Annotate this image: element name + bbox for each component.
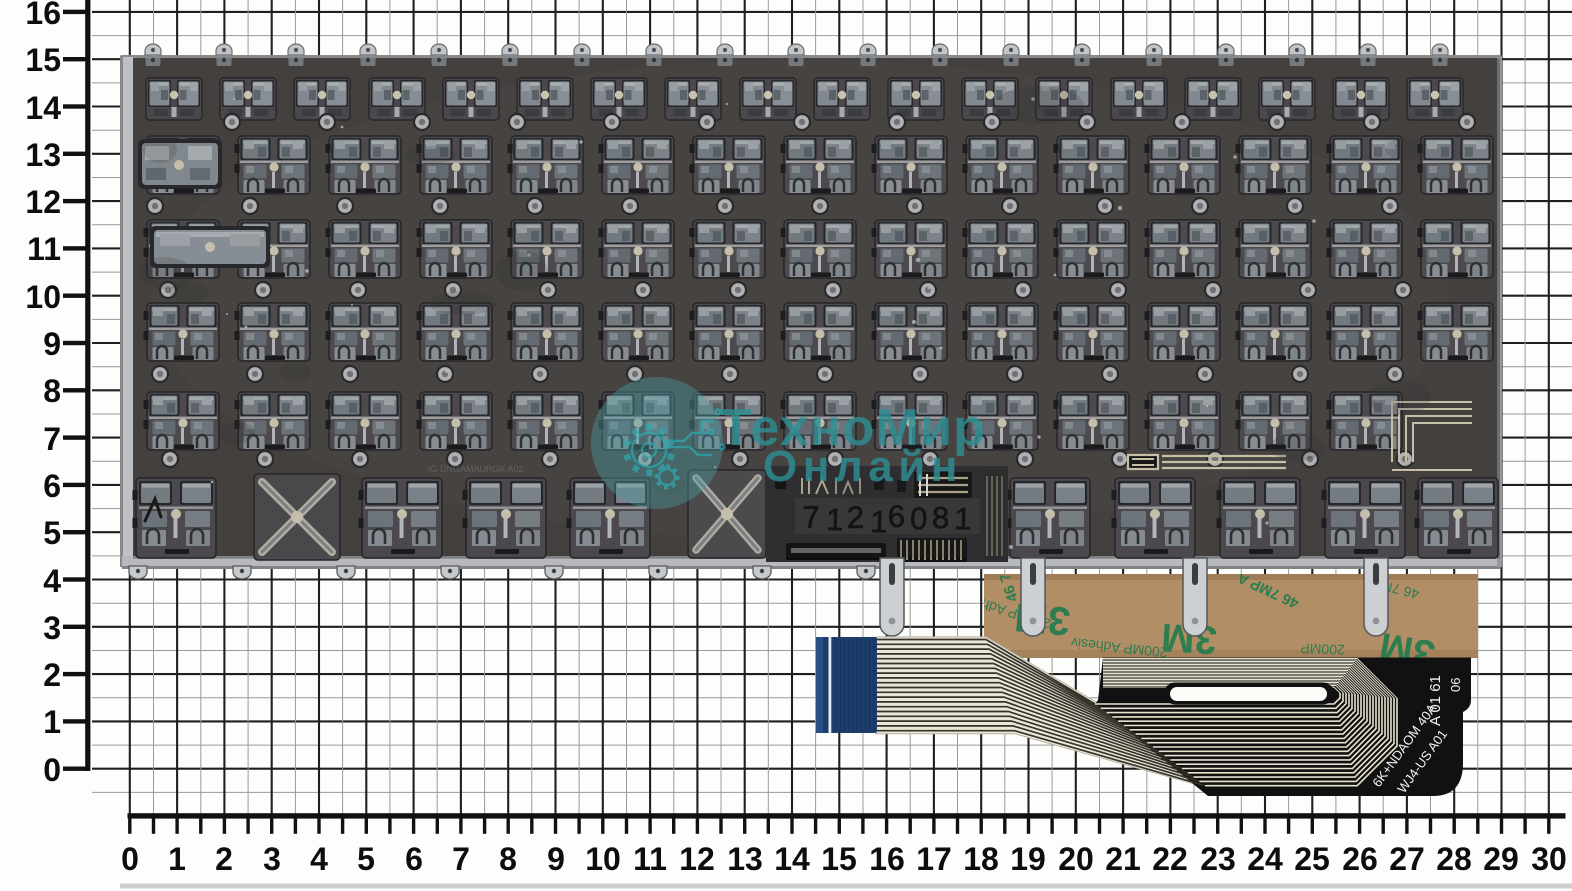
svg-text:3: 3 [263, 841, 281, 877]
svg-text:7: 7 [452, 841, 470, 877]
svg-text:9: 9 [547, 841, 565, 877]
svg-text:0: 0 [43, 752, 61, 788]
svg-text:06: 06 [1448, 678, 1463, 692]
svg-text:12: 12 [679, 841, 715, 877]
svg-text:13: 13 [25, 137, 61, 173]
svg-text:19: 19 [1010, 841, 1046, 877]
svg-text:16: 16 [25, 0, 61, 31]
svg-text:27: 27 [1389, 841, 1425, 877]
svg-text:5: 5 [357, 841, 375, 877]
svg-text:9: 9 [43, 326, 61, 362]
svg-text:16: 16 [869, 841, 905, 877]
svg-text:17: 17 [916, 841, 952, 877]
svg-text:30: 30 [1531, 841, 1567, 877]
svg-text:25: 25 [1294, 841, 1330, 877]
svg-text:6: 6 [405, 841, 423, 877]
svg-text:22: 22 [1152, 841, 1188, 877]
svg-text:2: 2 [43, 657, 61, 693]
svg-text:14: 14 [774, 841, 810, 877]
svg-text:26: 26 [1342, 841, 1378, 877]
svg-text:15: 15 [25, 42, 61, 78]
svg-text:1: 1 [168, 841, 186, 877]
svg-text:10: 10 [585, 841, 621, 877]
svg-text:15: 15 [821, 841, 857, 877]
svg-text:11: 11 [27, 231, 61, 267]
svg-text:13: 13 [727, 841, 763, 877]
svg-text:5: 5 [43, 515, 61, 551]
svg-text:8: 8 [499, 841, 517, 877]
svg-text:1: 1 [43, 704, 61, 740]
svg-text:6: 6 [43, 468, 61, 504]
svg-text:Онлайн: Онлайн [763, 442, 963, 491]
svg-text:8: 8 [43, 373, 61, 409]
svg-text:2: 2 [215, 841, 233, 877]
svg-text:18: 18 [963, 841, 999, 877]
svg-text:28: 28 [1436, 841, 1472, 877]
svg-text:12: 12 [25, 184, 61, 220]
svg-text:7: 7 [43, 421, 61, 457]
svg-text:21: 21 [1105, 841, 1141, 877]
svg-text:23: 23 [1200, 841, 1236, 877]
svg-text:4: 4 [43, 563, 61, 599]
svg-text:24: 24 [1247, 841, 1283, 877]
svg-text:10: 10 [25, 279, 61, 315]
svg-text:29: 29 [1483, 841, 1519, 877]
svg-text:20: 20 [1058, 841, 1094, 877]
svg-text:200MP: 200MP [1300, 640, 1345, 658]
svg-text:3: 3 [43, 610, 61, 646]
svg-text:14: 14 [25, 90, 61, 126]
svg-text:0: 0 [121, 841, 139, 877]
svg-text:A 01 61: A 01 61 [1427, 675, 1444, 726]
svg-text:11: 11 [633, 841, 667, 877]
svg-text:4: 4 [310, 841, 328, 877]
